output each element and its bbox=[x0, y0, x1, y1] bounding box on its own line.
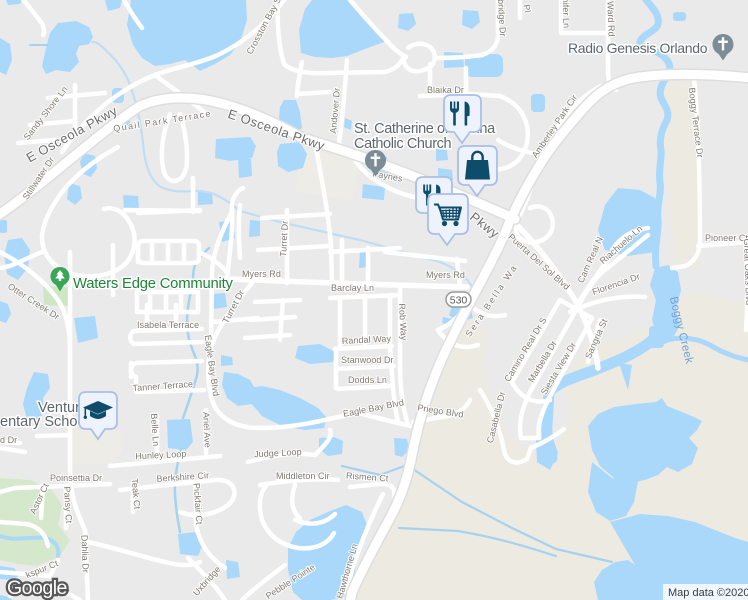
svg-text:Map data ©2020: Map data ©2020 bbox=[668, 587, 748, 599]
svg-text:Phifer Ln: Phifer Ln bbox=[560, 0, 571, 28]
svg-text:Stanwood Dr: Stanwood Dr bbox=[341, 355, 394, 365]
svg-text:Pl: Pl bbox=[521, 4, 532, 14]
svg-text:Poinsettia Dr: Poinsettia Dr bbox=[50, 473, 102, 483]
svg-text:Turret Dr: Turret Dr bbox=[278, 221, 290, 258]
svg-text:Radio Genesis Orlando: Radio Genesis Orlando bbox=[568, 40, 708, 56]
svg-text:Dodds Ln: Dodds Ln bbox=[348, 375, 387, 385]
svg-text:bridge Dr: bridge Dr bbox=[496, 0, 508, 37]
svg-text:Pioneer Ct: Pioneer Ct bbox=[705, 233, 748, 243]
svg-text:Barclay Ln: Barclay Ln bbox=[331, 283, 374, 293]
svg-text:d Dr: d Dr bbox=[0, 435, 17, 445]
svg-text:Myers Rd: Myers Rd bbox=[426, 270, 465, 280]
svg-text:Google: Google bbox=[7, 577, 67, 599]
svg-text:entary School: entary School bbox=[0, 414, 89, 430]
svg-text:Ariel Ave: Ariel Ave bbox=[201, 412, 213, 448]
svg-text:Isabela Terrace: Isabela Terrace bbox=[137, 320, 199, 330]
svg-text:Catholic Church: Catholic Church bbox=[354, 136, 451, 152]
svg-text:Middleton Cir: Middleton Cir bbox=[276, 471, 330, 481]
svg-text:Rob Way: Rob Way bbox=[397, 303, 409, 341]
svg-text:Waters Edge Community: Waters Edge Community bbox=[73, 276, 234, 292]
svg-text:Myers Rd: Myers Rd bbox=[242, 269, 281, 279]
svg-text:Pansy Ct: Pansy Ct bbox=[62, 486, 74, 524]
svg-text:Dahlia Dr: Dahlia Dr bbox=[79, 535, 90, 573]
svg-text:Blaika Dr: Blaika Dr bbox=[427, 85, 464, 95]
svg-text:530: 530 bbox=[450, 295, 468, 307]
svg-text:Ward Rd: Ward Rd bbox=[605, 1, 616, 37]
